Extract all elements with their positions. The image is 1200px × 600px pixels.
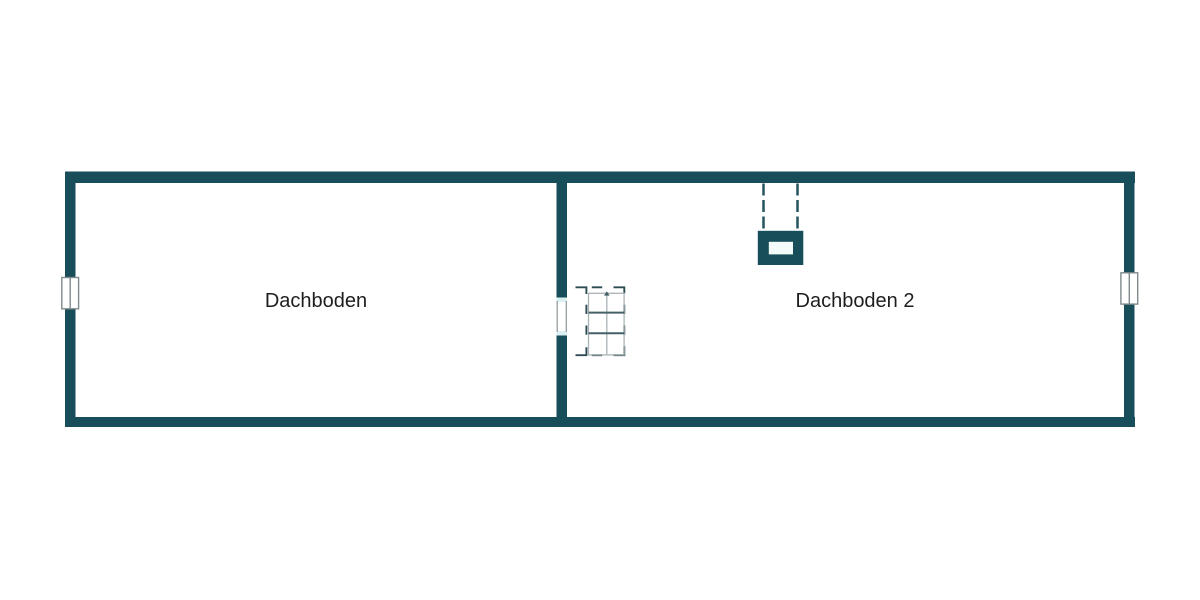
svg-text:Dachboden 2: Dachboden 2 (796, 290, 915, 312)
svg-text:Dachboden: Dachboden (265, 290, 367, 312)
